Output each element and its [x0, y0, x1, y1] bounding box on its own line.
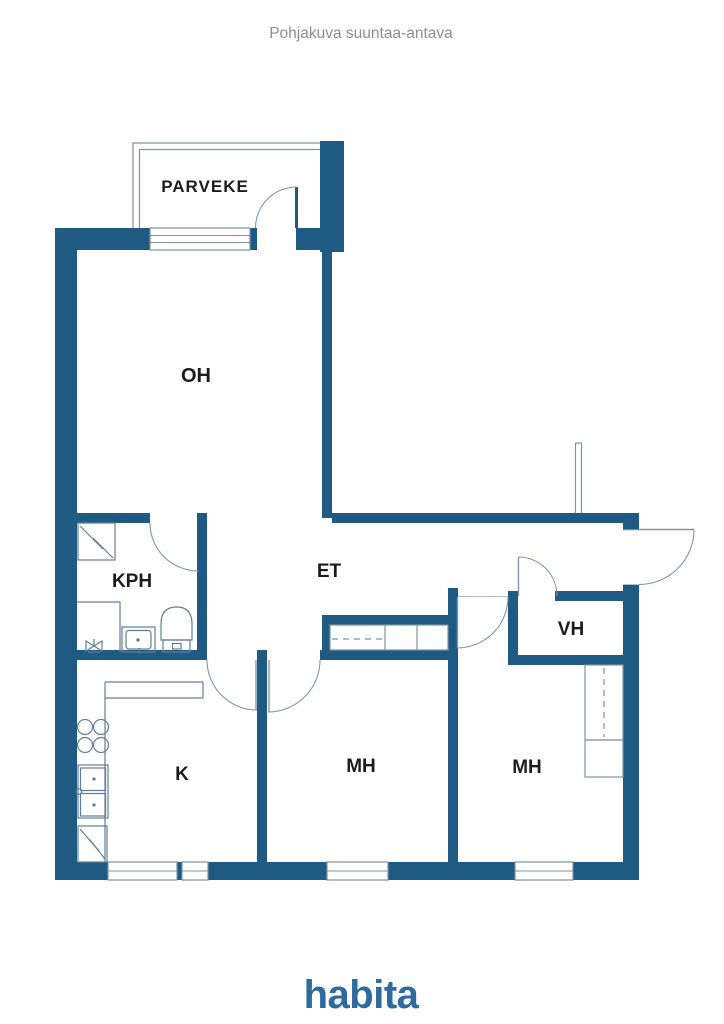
window	[182, 862, 208, 880]
wall-segment	[55, 228, 150, 250]
wall-segment	[508, 655, 639, 665]
wall-segment	[332, 513, 639, 523]
wall-segment	[257, 650, 267, 862]
stove-icon	[78, 720, 109, 753]
room-label-bedroom1: MH	[346, 756, 376, 777]
bedroom2-door	[457, 597, 508, 649]
dishwasher-reservation-icon	[78, 826, 107, 862]
room-label-closet-room: VH	[558, 619, 584, 640]
wall-segment	[320, 650, 450, 660]
room-label-bathroom: KPH	[112, 571, 152, 592]
plan-disclaimer: Pohjakuva suuntaa-antava	[269, 25, 453, 42]
bathroom-door	[150, 523, 199, 571]
window	[150, 228, 250, 250]
wall-segment	[555, 591, 623, 601]
kitchen-door	[207, 660, 257, 710]
wall-segment	[55, 513, 150, 523]
room-label-hall: ET	[317, 561, 342, 582]
floor-plan: Pohjakuva suuntaa-antava	[0, 0, 724, 1024]
closet-room-door	[519, 557, 558, 596]
wall-segment	[322, 615, 448, 625]
window	[108, 862, 177, 880]
wall-segment	[322, 615, 330, 660]
wall-segment	[508, 591, 518, 665]
sink-icon	[122, 627, 155, 654]
room-label-kitchen: K	[175, 764, 189, 785]
hall-closet	[330, 625, 448, 650]
wall-segment	[296, 228, 322, 250]
room-label-balcony: PARVEKE	[161, 177, 249, 196]
balcony-door	[256, 187, 297, 228]
bedroom-closet	[585, 665, 623, 777]
floor-plan-page: Pohjakuva suuntaa-antava	[0, 0, 724, 1024]
wall-segment	[250, 228, 257, 250]
room-label-living-room: OH	[181, 365, 211, 387]
habita-logo: habita	[304, 973, 420, 1017]
washer-reservation-icon	[78, 523, 115, 560]
room-labels: PARVEKE OH KPH ET VH K MH MH	[112, 177, 584, 785]
entrance-door	[623, 530, 694, 585]
room-label-bedroom2: MH	[512, 757, 542, 778]
kitchen-sink-icon	[76, 765, 108, 818]
faucet-icon	[77, 602, 120, 652]
duct-niche	[576, 443, 582, 513]
wall-segment	[623, 513, 639, 530]
window	[327, 862, 388, 880]
doors	[150, 187, 694, 712]
wall-segment	[623, 585, 639, 880]
wall-segment	[448, 588, 458, 862]
bedroom1-door	[268, 660, 320, 712]
toilet-icon	[161, 607, 192, 652]
wall-segment	[322, 252, 332, 518]
wall-segment	[320, 141, 344, 252]
window	[515, 862, 573, 880]
wall-segment	[55, 228, 77, 880]
